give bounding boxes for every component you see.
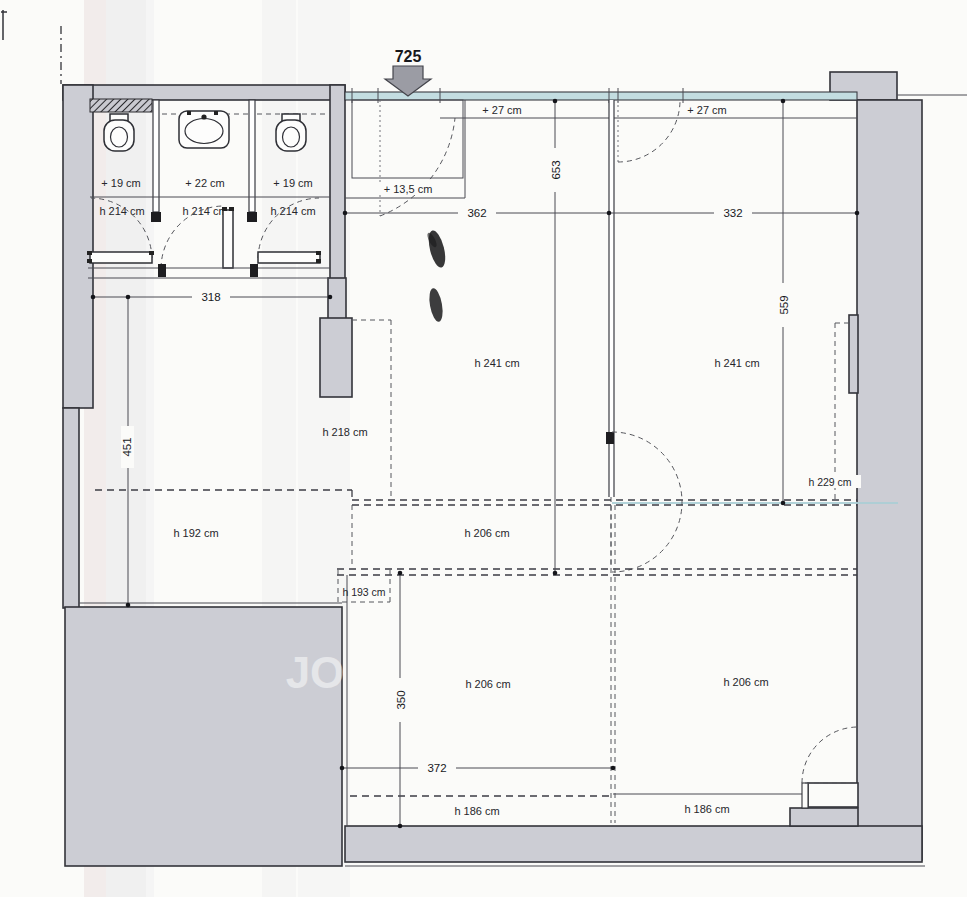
door-leaf (223, 210, 233, 268)
sink-icon (179, 111, 229, 148)
room-height-label: h 206 cm (464, 527, 509, 539)
room-height-label: h 218 cm (322, 426, 367, 438)
dim-label-318: 318 (201, 291, 220, 303)
room-height-label: h 241 cm (714, 357, 759, 369)
dim-label-362: 362 (467, 207, 486, 219)
shelf-hatch-icon (90, 99, 152, 112)
stall-offset-label: + 19 cm (101, 177, 140, 189)
floor-plan: JO + 19 cm + 22 cm + 19 cm h (0, 0, 967, 897)
room-height-label: h 192 cm (173, 527, 218, 539)
stall-height-label: h 214 cm (99, 205, 144, 217)
stall-partition (153, 100, 159, 212)
dim-label-653: 653 (550, 160, 562, 179)
pier-column (320, 318, 352, 397)
bottom-wall (345, 826, 922, 862)
dim-label-350: 350 (395, 690, 407, 709)
stall-offset-label: + 22 cm (185, 177, 224, 189)
door-step (790, 808, 858, 826)
ceiling-offset-label: + 13,5 cm (384, 183, 433, 195)
scanned-floor-plan-page: JO + 19 cm + 22 cm + 19 cm h (0, 0, 967, 897)
door-leaf (258, 252, 320, 263)
bottom-left-block (65, 607, 342, 866)
door-leaf (90, 252, 152, 263)
dim-label-451: 451 (121, 437, 133, 456)
ceiling-offset-label: + 27 cm (482, 104, 521, 116)
scan-watermark: JO (286, 648, 345, 697)
right-wall-jog (849, 315, 858, 393)
stall-partition (249, 100, 255, 212)
room-height-label: h 193 cm (342, 586, 385, 598)
right-wall (857, 100, 922, 860)
dim-label-559: 559 (778, 295, 790, 314)
dim-label-332: 332 (723, 207, 742, 219)
stall-height-label: h 214 cm (182, 205, 227, 217)
dim-label-372: 372 (427, 762, 446, 774)
room-height-label: h 206 cm (723, 676, 768, 688)
room-height-label: h 206 cm (465, 678, 510, 690)
room-height-label: h 186 cm (454, 805, 499, 817)
room-height-label: h 241 cm (474, 357, 519, 369)
ceiling-offset-label: + 27 cm (687, 104, 726, 116)
room-height-label: h 186 cm (684, 803, 729, 815)
stall-offset-label: + 19 cm (273, 177, 312, 189)
room-height-label: h 229 cm (808, 476, 851, 488)
entrance-width-label: 725 (395, 48, 422, 65)
